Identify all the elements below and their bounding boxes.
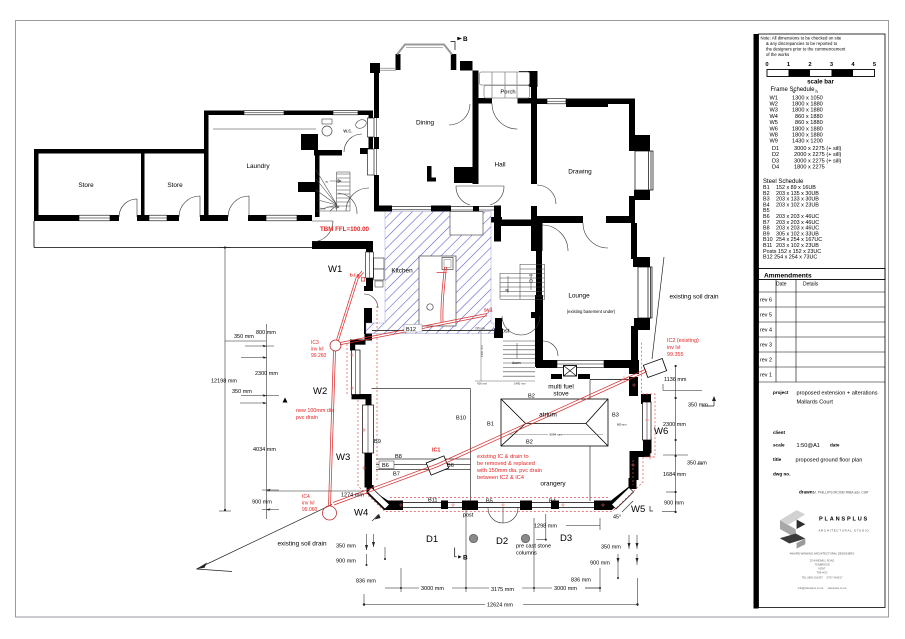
svg-text:W1: W1 — [328, 264, 342, 275]
svg-text:3175 mm: 3175 mm — [491, 587, 514, 593]
svg-text:D3: D3 — [772, 158, 779, 164]
svg-text:1800 x 1880: 1800 x 1880 — [792, 102, 823, 108]
svg-text:Ammendments: Ammendments — [764, 272, 812, 279]
svg-text:B12: B12 — [406, 327, 416, 333]
svg-text:TEL 0800 012457 0757 0456: TEL 0800 012457 0757 045617 — [802, 576, 843, 580]
svg-text:be removed & replaced: be removed & replaced — [477, 461, 535, 467]
svg-text:(existing basement under): (existing basement under) — [567, 309, 616, 314]
svg-text:860 x 1880: 860 x 1880 — [795, 120, 823, 126]
svg-text:up: up — [325, 180, 329, 184]
svg-text:new 100mm dia: new 100mm dia — [296, 408, 334, 414]
svg-text:Hall: Hall — [494, 162, 505, 169]
svg-text:1800 x 1880: 1800 x 1880 — [792, 126, 823, 132]
svg-text:Store: Store — [167, 182, 183, 189]
svg-text:W8: W8 — [770, 133, 778, 139]
svg-text:1:50@A1: 1:50@A1 — [797, 443, 820, 449]
svg-text:Drawing: Drawing — [568, 169, 592, 176]
svg-text:745 mm: 745 mm — [475, 326, 486, 330]
svg-text:W6: W6 — [654, 426, 668, 437]
svg-text:B1: B1 — [487, 422, 494, 428]
svg-text:existing soil drain: existing soil drain — [277, 541, 326, 548]
svg-text:existing soil drain: existing soil drain — [669, 294, 718, 301]
svg-text:AWARD WINNING ARCHITECTURAL DE: AWARD WINNING ARCHITECTURAL DESIGNERS — [790, 552, 855, 556]
svg-text:B: B — [463, 555, 468, 562]
svg-text:350 mm: 350 mm — [234, 334, 254, 340]
svg-text:860 x 1880: 860 x 1880 — [795, 114, 823, 120]
svg-text:pre cast stone: pre cast stone — [516, 544, 551, 550]
svg-text:1400 mm: 1400 mm — [480, 345, 484, 357]
svg-text:1136 mm: 1136 mm — [664, 377, 687, 383]
svg-text:Store: Store — [78, 182, 94, 189]
svg-text:IC4: IC4 — [302, 494, 310, 500]
svg-text:2300 mm: 2300 mm — [255, 371, 278, 377]
svg-text:atrium: atrium — [539, 412, 557, 419]
svg-text:W1: W1 — [770, 95, 778, 101]
svg-text:Porch: Porch — [500, 90, 515, 96]
svg-text:99.260: 99.260 — [311, 353, 327, 359]
svg-text:ARCHITECTURAL STUDIO: ARCHITECTURAL STUDIO — [819, 529, 870, 533]
svg-text:B4: B4 — [549, 499, 556, 505]
svg-text:rev 1: rev 1 — [760, 373, 772, 379]
svg-text:800 mm: 800 mm — [617, 423, 626, 427]
svg-text:Mallards Court: Mallards Court — [797, 400, 834, 406]
svg-text:IC2 (existing): IC2 (existing) — [667, 338, 699, 344]
svg-text:Details: Details — [803, 282, 819, 288]
svg-text:D1: D1 — [426, 534, 438, 545]
svg-text:900 mm: 900 mm — [590, 561, 610, 567]
svg-text:W5: W5 — [631, 504, 645, 515]
svg-text:836 mm: 836 mm — [356, 579, 376, 585]
svg-text:IC1: IC1 — [432, 448, 440, 454]
svg-text:Date: Date — [776, 282, 787, 288]
svg-text:rev 2: rev 2 — [760, 358, 772, 364]
svg-text:rev 4: rev 4 — [760, 328, 772, 334]
svg-text:900 mm: 900 mm — [664, 501, 684, 507]
svg-text:multi fuel: multi fuel — [548, 384, 574, 391]
svg-text:W6: W6 — [770, 126, 778, 132]
svg-text:B6: B6 — [382, 463, 389, 469]
svg-text:up: up — [505, 288, 509, 292]
svg-text:proposed extension + alteratio: proposed extension + alterations — [797, 391, 878, 397]
svg-text:3000 x 2275 (+ sill): 3000 x 2275 (+ sill) — [794, 146, 842, 152]
svg-text:stove: stove — [553, 391, 569, 398]
svg-text:B6: B6 — [447, 463, 454, 469]
svg-text:IC3: IC3 — [311, 340, 319, 346]
svg-text:Lounge: Lounge — [568, 293, 590, 300]
svg-text:W2: W2 — [770, 102, 778, 108]
svg-text:TONBRIDGE: TONBRIDGE — [814, 563, 830, 567]
svg-text:B8: B8 — [395, 454, 402, 460]
svg-text:inv lvl: inv lvl — [667, 345, 680, 351]
svg-text:columns: columns — [516, 551, 537, 557]
svg-text:1430 x 1200: 1430 x 1200 — [792, 139, 823, 145]
svg-text:rev 5: rev 5 — [760, 313, 772, 319]
svg-text:title: title — [773, 457, 782, 462]
svg-text:W9: W9 — [770, 139, 778, 145]
svg-text:PLANSPLUS: PLANSPLUS — [819, 517, 869, 523]
svg-text:of the works: of the works — [766, 52, 789, 57]
svg-text:post: post — [499, 329, 510, 335]
svg-text:the designers prior to the com: the designers prior to the commencement — [766, 47, 846, 52]
svg-text:25 WINDMILL ROAD: 25 WINDMILL ROAD — [810, 559, 835, 563]
svg-text:1800 x 2275: 1800 x 2275 — [794, 165, 825, 171]
svg-text:scale: scale — [773, 443, 785, 448]
svg-text:sv1: sv1 — [484, 308, 493, 314]
svg-text:99.060: 99.060 — [302, 507, 318, 513]
svg-text:scale bar: scale bar — [807, 79, 834, 86]
svg-text:4034 mm: 4034 mm — [253, 447, 276, 453]
svg-text:W3: W3 — [336, 452, 350, 463]
svg-text:post: post — [463, 513, 474, 519]
svg-text:B3: B3 — [612, 413, 619, 419]
svg-text:W4: W4 — [770, 114, 778, 120]
svg-text:203 x 102 x 23UB: 203 x 102 x 23UB — [776, 202, 819, 208]
svg-text:between IC2 & IC4: between IC2 & IC4 — [477, 475, 524, 481]
svg-text:D1: D1 — [772, 146, 779, 152]
svg-text:3000 x 2275 (+ sill): 3000 x 2275 (+ sill) — [794, 158, 842, 164]
svg-text:W5: W5 — [770, 120, 778, 126]
svg-text:proposed ground floor plan: proposed ground floor plan — [796, 458, 863, 464]
svg-text:800 mm: 800 mm — [256, 330, 276, 336]
svg-text:B7: B7 — [393, 472, 400, 478]
svg-text:350 mm: 350 mm — [601, 545, 621, 551]
svg-text:rev 3: rev 3 — [760, 343, 772, 349]
svg-text:Note: All dimensions to be che: Note: All dimensions to be checked on si… — [761, 36, 842, 41]
svg-text:45°: 45° — [613, 515, 621, 521]
svg-text:426 mm: 426 mm — [477, 382, 488, 386]
svg-text:M. PHILLIPS MCIOB RIBA adv.: M. PHILLIPS MCIOB RIBA adv. CIAT — [813, 491, 869, 495]
svg-text:TN9 4GG: TN9 4GG — [816, 571, 827, 575]
svg-text:D2: D2 — [496, 536, 508, 547]
svg-text:Laundry: Laundry — [246, 163, 270, 170]
svg-text:up: up — [529, 273, 533, 277]
svg-text:2000 x 2275 (+ sill): 2000 x 2275 (+ sill) — [794, 152, 842, 158]
svg-text:2: 2 — [808, 62, 811, 68]
svg-text:1460 mm: 1460 mm — [514, 382, 526, 386]
svg-text:5094 mm: 5094 mm — [550, 433, 563, 437]
svg-text:B10: B10 — [456, 416, 466, 422]
svg-text:B12 254 x 254 x 73UC: B12 254 x 254 x 73UC — [763, 255, 817, 261]
svg-text:B2: B2 — [528, 394, 535, 400]
svg-text:b.i.g.: b.i.g. — [350, 273, 361, 278]
svg-text:TBM FFL=100.00: TBM FFL=100.00 — [320, 226, 370, 233]
svg-text:1800 x 1880: 1800 x 1880 — [792, 108, 823, 114]
svg-text:Kitchen: Kitchen — [391, 268, 413, 275]
svg-text:B2: B2 — [526, 440, 533, 446]
svg-text:down: down — [512, 361, 521, 365]
svg-text:down: down — [319, 207, 327, 211]
svg-text:B: B — [463, 36, 468, 43]
svg-text:client: client — [773, 430, 785, 435]
svg-text:350 mm: 350 mm — [232, 389, 252, 395]
svg-text:B5: B5 — [486, 499, 493, 505]
svg-text:836 mm: 836 mm — [571, 578, 591, 584]
svg-text:350 mm: 350 mm — [688, 403, 708, 409]
svg-text:D3: D3 — [560, 533, 572, 544]
svg-text:3000 mm: 3000 mm — [421, 586, 444, 592]
svg-text:B11: B11 — [428, 498, 438, 504]
svg-text:1800 x 1880: 1800 x 1880 — [792, 133, 823, 139]
svg-text:with 150mm dia. pvc drain: with 150mm dia. pvc drain — [476, 468, 542, 474]
svg-text:project: project — [773, 390, 789, 395]
svg-text:1274 mm: 1274 mm — [341, 493, 364, 499]
svg-text:D4: D4 — [772, 165, 779, 171]
svg-text:dwg no.: dwg no. — [773, 472, 790, 477]
svg-text:1298 mm: 1298 mm — [534, 524, 557, 530]
svg-text:900 mm: 900 mm — [252, 500, 272, 506]
svg-text:350 mm: 350 mm — [687, 461, 707, 467]
svg-text:B9: B9 — [374, 439, 381, 445]
svg-text:date: date — [830, 443, 840, 448]
svg-text:W4: W4 — [354, 508, 368, 519]
svg-text:12624 mm: 12624 mm — [487, 603, 513, 609]
svg-text:99.355: 99.355 — [667, 352, 684, 358]
svg-text:D2: D2 — [772, 152, 779, 158]
svg-text:Dining: Dining — [416, 120, 435, 127]
svg-text:pvc drain: pvc drain — [296, 415, 318, 421]
svg-text:1300 x 1050: 1300 x 1050 — [792, 95, 823, 101]
svg-text:W2: W2 — [313, 386, 327, 397]
svg-text:0: 0 — [765, 62, 768, 68]
svg-text:existing IC & drain to: existing IC & drain to — [477, 454, 529, 460]
svg-text:inv lvl: inv lvl — [311, 347, 324, 353]
svg-text:1684 mm: 1684 mm — [663, 472, 686, 478]
svg-text:900 mm: 900 mm — [336, 559, 356, 565]
svg-text:info@plansplus.co.uk plan: info@plansplus.co.uk plansplus.co.uk — [798, 586, 847, 590]
svg-text:12198 mm: 12198 mm — [211, 379, 237, 385]
svg-text:W3: W3 — [770, 108, 778, 114]
svg-text:inv lvl: inv lvl — [302, 501, 315, 507]
svg-text:rev 6: rev 6 — [760, 298, 772, 304]
svg-text:350 mm: 350 mm — [336, 544, 356, 550]
svg-text:KENT: KENT — [819, 567, 826, 571]
svg-text:orangery: orangery — [540, 481, 566, 488]
svg-text:3000 mm: 3000 mm — [554, 586, 577, 592]
svg-text:w.c.: w.c. — [342, 129, 352, 135]
svg-text:& any discrepancies to be repo: & any discrepancies to be reported to — [766, 41, 838, 46]
